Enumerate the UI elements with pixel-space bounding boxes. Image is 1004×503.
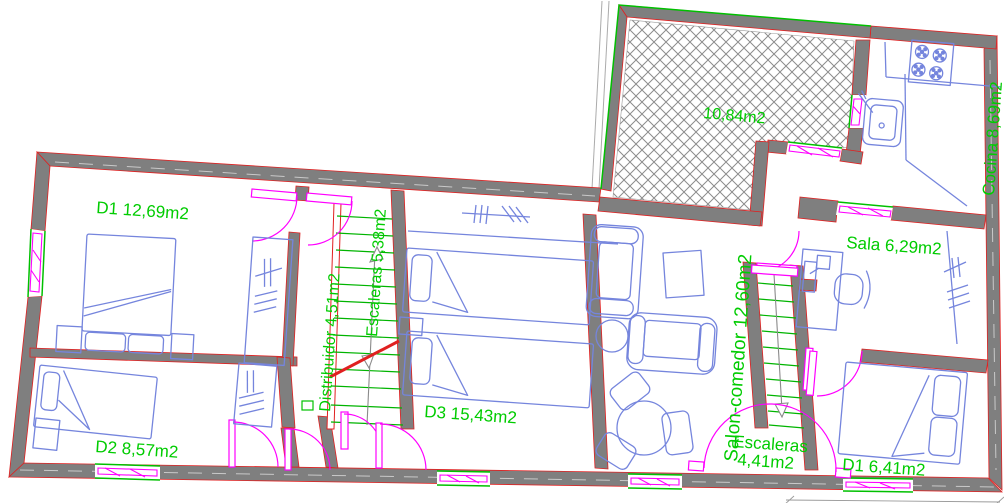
dimension-line <box>784 496 1004 503</box>
wardrobe-d2 <box>234 363 277 427</box>
wall-left-upper <box>31 152 50 231</box>
label-kitchen: Cocina 8,69m2 <box>979 81 1004 196</box>
dining-set-living <box>594 370 694 472</box>
floor-plan-page: D1 12,69m2 D2 8,57m2 D3 15,43m2 Distribu… <box>0 0 1004 503</box>
wall-d1-corridor <box>282 232 300 366</box>
threshold-marker <box>302 401 313 410</box>
coffee-table-living <box>663 250 704 298</box>
window-left-wall <box>28 229 45 297</box>
bed-single-d2 <box>34 365 158 439</box>
label-stairs-main: Escaleras 5,38m2 <box>364 208 390 337</box>
bed-double-d1-left <box>56 233 199 360</box>
wall-office-top-left <box>798 197 838 222</box>
loveseat-living <box>626 312 718 375</box>
door-corridor <box>306 193 352 245</box>
window-office <box>836 202 893 220</box>
door-d1-right <box>806 351 862 396</box>
label-d1-left: D1 12,69m2 <box>96 198 190 223</box>
floor-plan-canvas: D1 12,69m2 D2 8,57m2 D3 15,43m2 Distribu… <box>0 0 1004 503</box>
wall-d3-living-divider <box>583 214 608 469</box>
label-d3: D3 15,43m2 <box>424 402 518 427</box>
wall-terrace-bottom-right <box>840 149 863 164</box>
bed-single-d3-bottom <box>403 331 594 408</box>
wall-terrace-kitchen-upper <box>852 40 870 95</box>
wardrobe-office <box>944 231 970 344</box>
side-table-d2 <box>33 418 60 450</box>
label-office: Sala 6,29m2 <box>846 233 943 259</box>
window-bottom-d3 <box>437 471 490 486</box>
door-d3 <box>376 423 426 470</box>
label-corridor: Distribuidor 4,51m2 <box>317 273 344 413</box>
label-stairs-small-area: 4,41m2 <box>737 450 795 473</box>
wall-kitchen-top <box>870 26 997 49</box>
window-bottom-living <box>628 474 682 489</box>
label-d2: D2 8,57m2 <box>95 437 179 462</box>
window-bottom-d2 <box>95 464 160 480</box>
bed-single-d3-top <box>403 248 594 325</box>
wall-d2-right-upper <box>277 357 295 428</box>
wall-left-lower <box>9 296 42 477</box>
stove-kitchen <box>908 40 954 86</box>
wall-office-top-right <box>891 206 986 229</box>
bed-double-d1-right <box>838 362 968 464</box>
window-bottom-d1-right <box>843 478 913 492</box>
